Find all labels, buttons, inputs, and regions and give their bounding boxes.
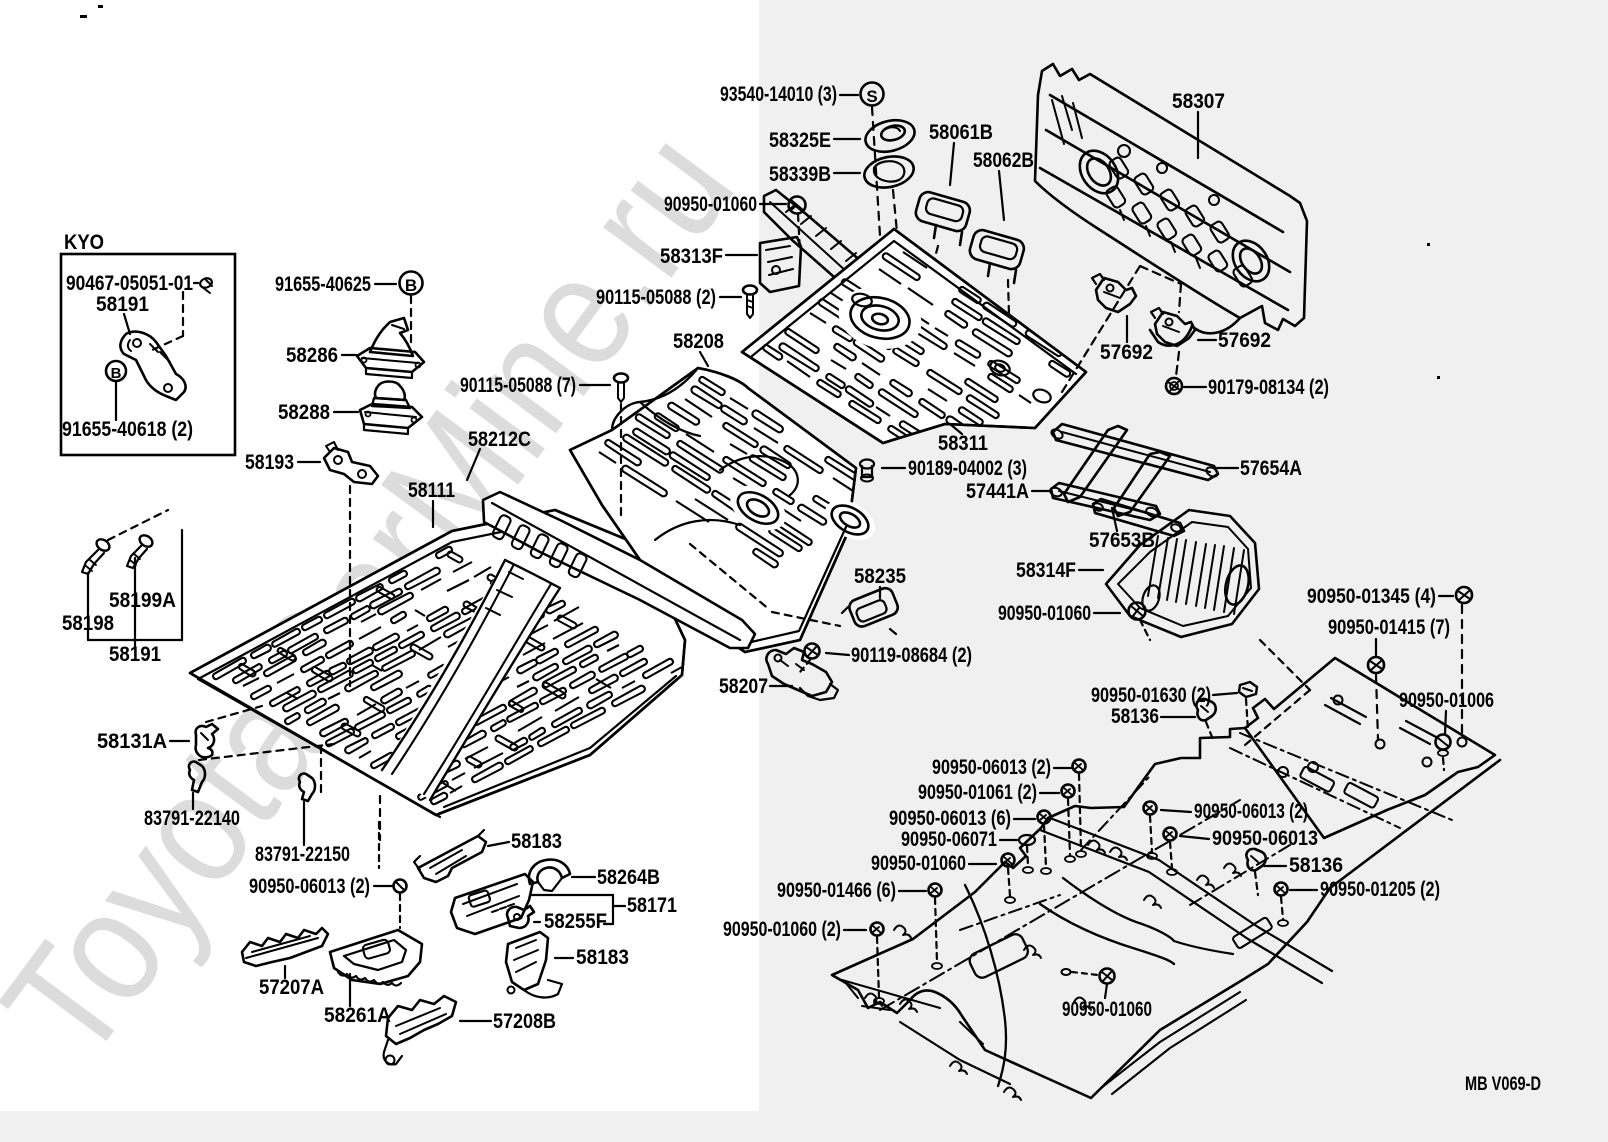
- svg-text:83791-22140: 83791-22140: [144, 807, 240, 830]
- svg-text:58207: 58207: [719, 675, 768, 698]
- svg-text:90950-06013 (2): 90950-06013 (2): [932, 756, 1051, 779]
- svg-text:B: B: [111, 365, 122, 382]
- svg-text:58193: 58193: [245, 451, 294, 474]
- svg-text:90950-01345 (4): 90950-01345 (4): [1307, 585, 1436, 608]
- svg-text:90950-06013: 90950-06013: [1212, 827, 1318, 850]
- svg-text:58111: 58111: [408, 479, 455, 502]
- svg-text:91655-40618 (2): 91655-40618 (2): [62, 418, 193, 441]
- svg-text:58136: 58136: [1111, 705, 1159, 728]
- svg-text:58062B: 58062B: [973, 149, 1034, 172]
- svg-text:58313F: 58313F: [660, 245, 723, 268]
- svg-text:57441A: 57441A: [966, 480, 1029, 503]
- svg-text:B: B: [405, 276, 417, 295]
- svg-text:90115-05088 (7): 90115-05088 (7): [460, 374, 576, 397]
- svg-text:58136: 58136: [1289, 854, 1343, 877]
- svg-text:90950-01060: 90950-01060: [998, 602, 1091, 625]
- svg-text:58131A: 58131A: [97, 730, 167, 753]
- svg-text:90950-06071: 90950-06071: [901, 828, 997, 851]
- svg-text:KYO: KYO: [64, 231, 104, 254]
- svg-text:58311: 58311: [938, 432, 988, 455]
- svg-text:90467-05051-01: 90467-05051-01: [66, 272, 193, 295]
- svg-text:58191: 58191: [109, 643, 161, 666]
- svg-text:90950-01415 (7): 90950-01415 (7): [1328, 616, 1450, 639]
- svg-text:58261A: 58261A: [324, 1004, 391, 1027]
- svg-text:58212C: 58212C: [468, 428, 531, 451]
- svg-text:58286: 58286: [286, 344, 338, 367]
- svg-text:90950-01060: 90950-01060: [664, 193, 757, 216]
- svg-text:58199A: 58199A: [109, 589, 176, 612]
- svg-text:58288: 58288: [278, 401, 330, 424]
- svg-text:90950-01205 (2): 90950-01205 (2): [1320, 878, 1440, 901]
- svg-text:57208B: 57208B: [493, 1010, 556, 1033]
- svg-text:90950-06013 (2): 90950-06013 (2): [1194, 800, 1308, 823]
- svg-text:90950-06013 (6): 90950-06013 (6): [889, 807, 1011, 830]
- svg-text:58264B: 58264B: [597, 866, 660, 889]
- svg-text:91655-40625: 91655-40625: [275, 273, 371, 296]
- svg-text:57654A: 57654A: [1240, 457, 1302, 480]
- svg-text:90950-01630 (2): 90950-01630 (2): [1091, 684, 1211, 707]
- svg-text:90950-01466 (6): 90950-01466 (6): [777, 879, 896, 902]
- svg-text:58183: 58183: [576, 946, 629, 969]
- svg-text:58171: 58171: [627, 894, 677, 917]
- svg-text:90950-01060: 90950-01060: [1062, 998, 1152, 1021]
- svg-text:58208: 58208: [673, 330, 724, 353]
- svg-text:83791-22150: 83791-22150: [255, 843, 350, 866]
- svg-text:90119-08684 (2): 90119-08684 (2): [851, 644, 972, 667]
- svg-text:58339B: 58339B: [769, 163, 831, 186]
- svg-text:90950-01006: 90950-01006: [1399, 689, 1494, 712]
- svg-text:90950-01060 (2): 90950-01060 (2): [723, 918, 841, 941]
- svg-text:57692: 57692: [1218, 329, 1271, 352]
- svg-text:MB V069-D: MB V069-D: [1465, 1074, 1541, 1095]
- svg-text:90950-01061 (2): 90950-01061 (2): [918, 781, 1037, 804]
- svg-text:S: S: [866, 87, 877, 106]
- svg-text:58235: 58235: [854, 565, 906, 588]
- svg-text:57692: 57692: [1100, 341, 1153, 364]
- svg-text:90179-08134 (2): 90179-08134 (2): [1208, 376, 1329, 399]
- svg-text:58325E: 58325E: [769, 129, 831, 152]
- svg-text:58198: 58198: [62, 612, 114, 635]
- svg-text:93540-14010 (3): 93540-14010 (3): [720, 83, 837, 106]
- svg-text:90950-01060: 90950-01060: [871, 852, 966, 875]
- svg-text:58191: 58191: [96, 293, 149, 316]
- svg-text:90950-06013 (2): 90950-06013 (2): [249, 875, 370, 898]
- svg-text:58307: 58307: [1172, 90, 1225, 113]
- svg-text:90115-05088 (2): 90115-05088 (2): [596, 286, 716, 309]
- svg-text:58061B: 58061B: [929, 121, 993, 144]
- svg-text:57207A: 57207A: [259, 976, 324, 999]
- svg-text:58314F: 58314F: [1016, 559, 1076, 582]
- svg-text:58255F: 58255F: [544, 910, 607, 933]
- svg-text:58183: 58183: [511, 830, 562, 853]
- svg-text:90189-04002 (3): 90189-04002 (3): [908, 457, 1027, 480]
